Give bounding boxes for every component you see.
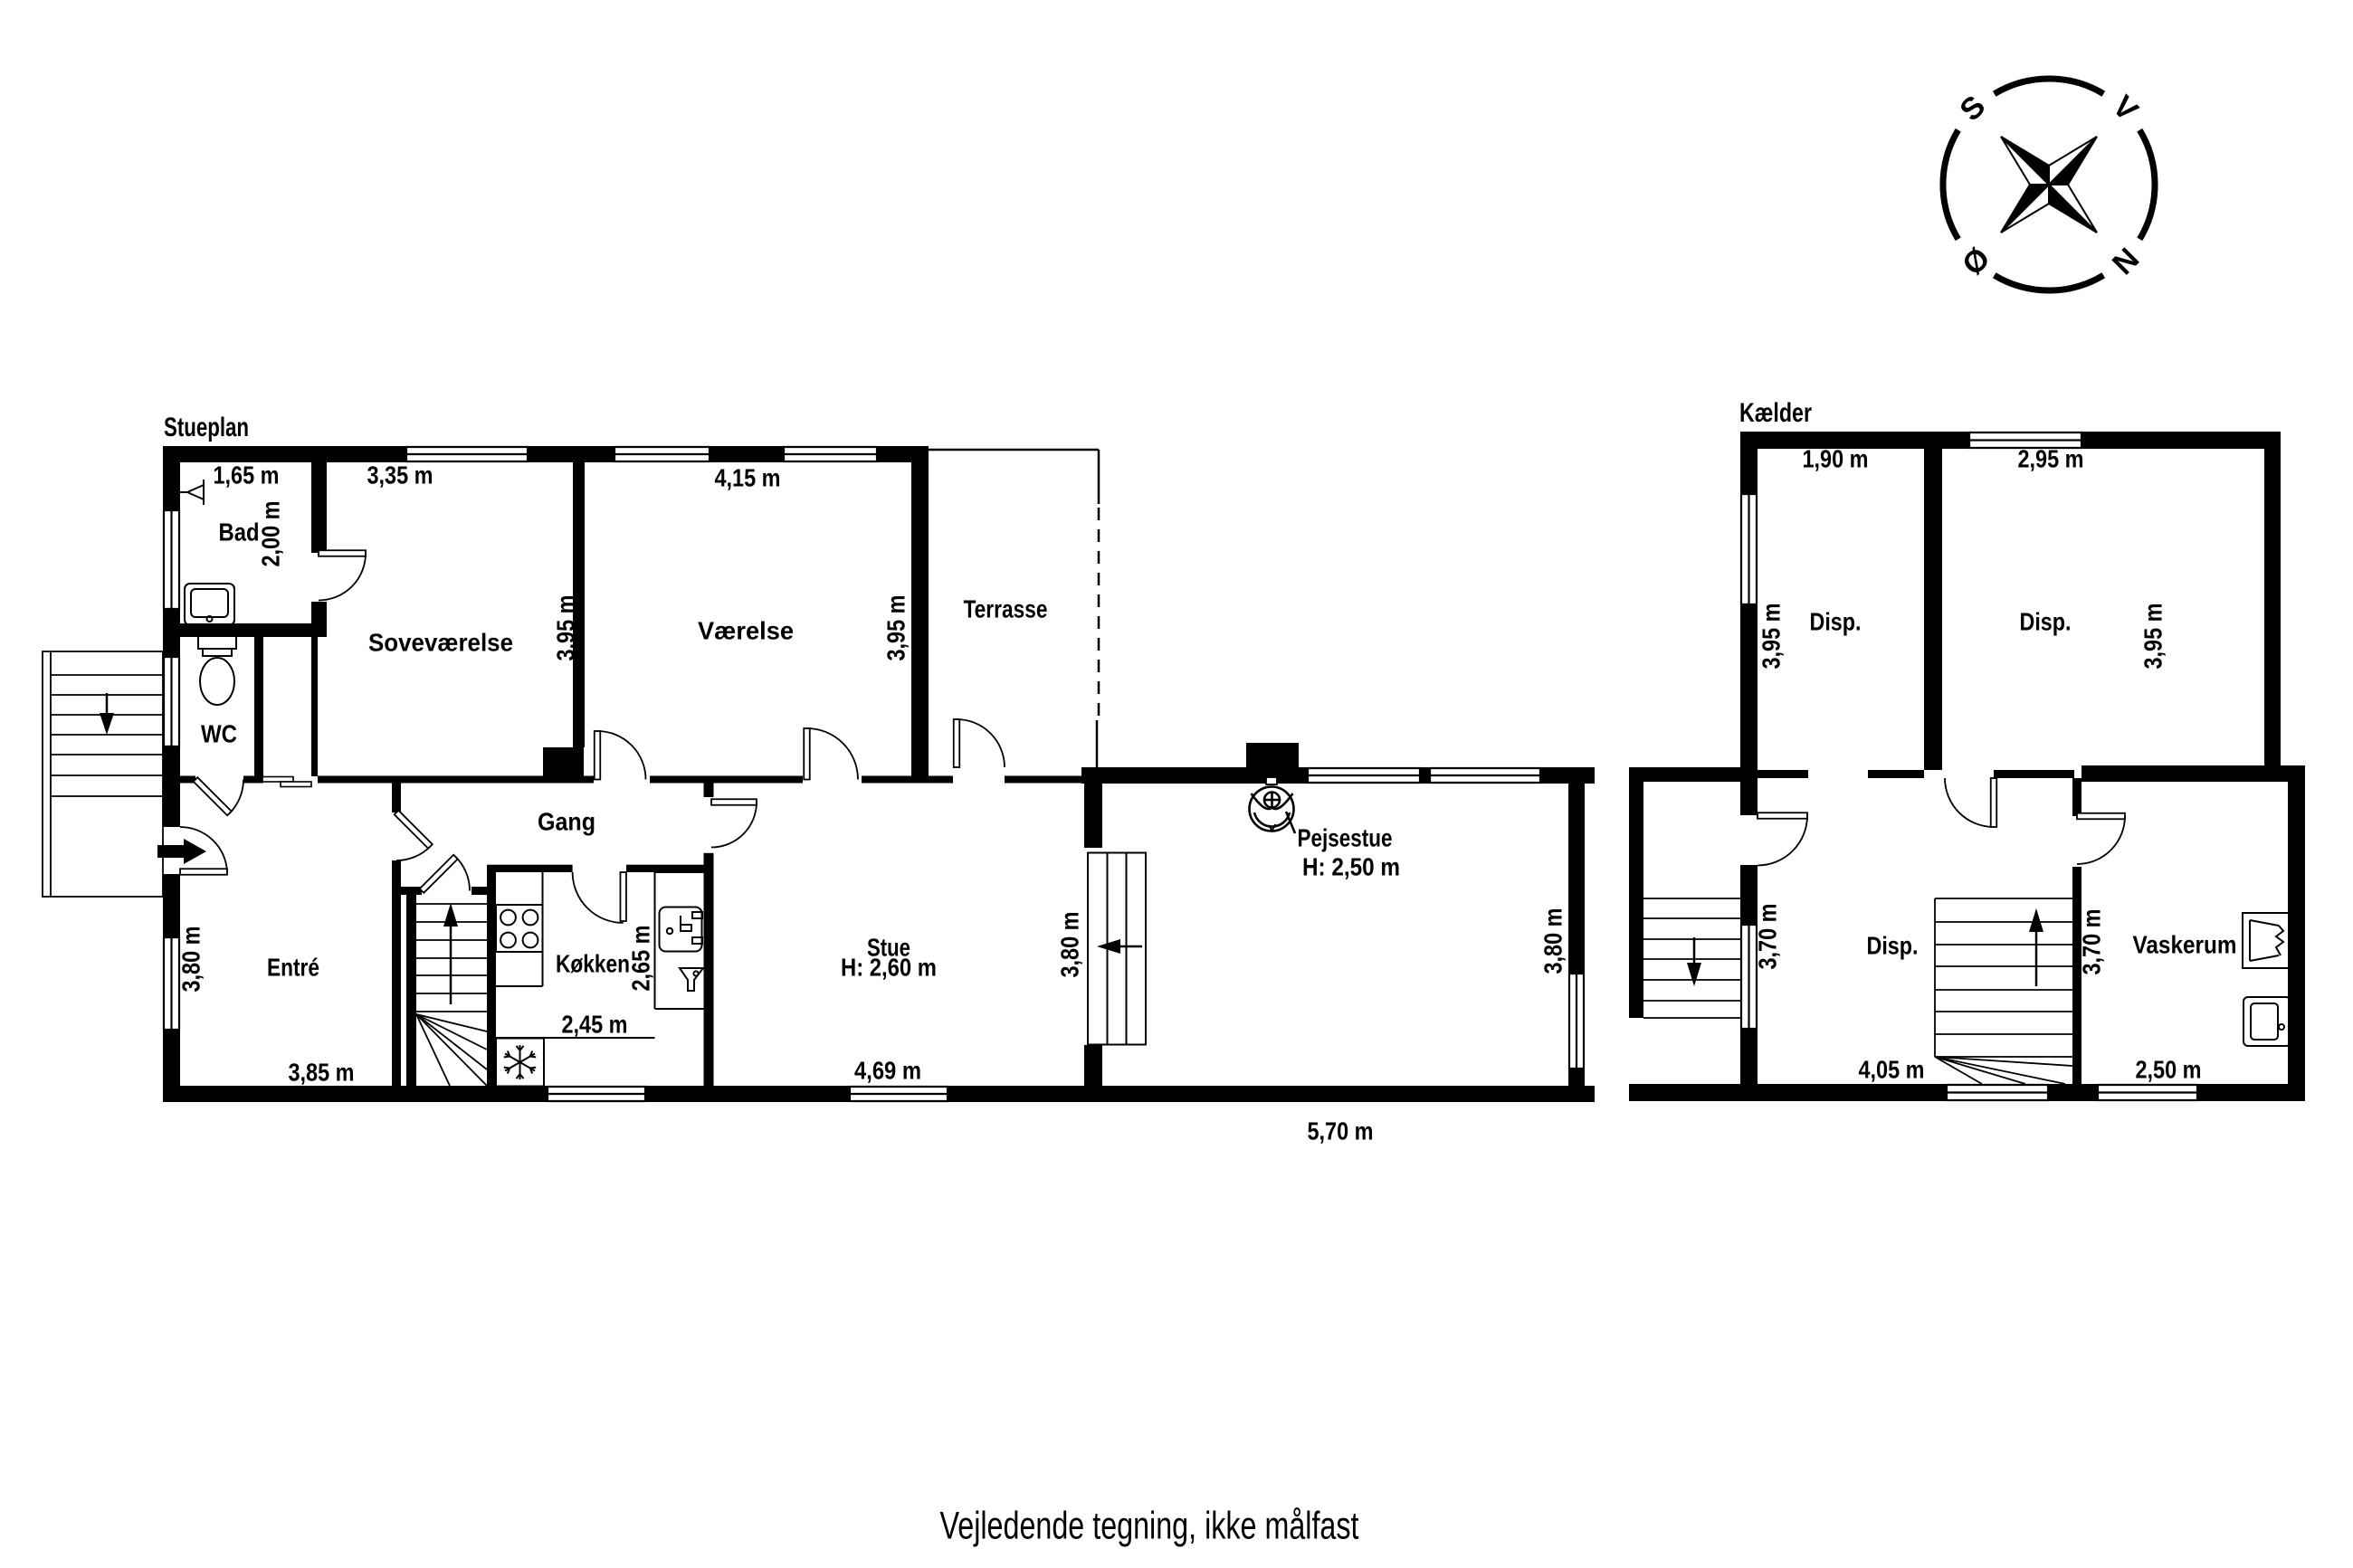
svg-text:Entré: Entré — [267, 953, 319, 981]
svg-text:Stueplan: Stueplan — [164, 413, 249, 442]
svg-text:2,45 m: 2,45 m — [562, 1010, 628, 1038]
svg-text:Terrasse: Terrasse — [964, 594, 1048, 622]
svg-text:Vejledende tegning, ikke målfa: Vejledende tegning, ikke målfast — [940, 1504, 1359, 1547]
svg-text:2,50 m: 2,50 m — [2136, 1055, 2202, 1083]
svg-text:3,35 m: 3,35 m — [367, 461, 433, 489]
svg-text:Værelse: Værelse — [698, 616, 794, 644]
svg-text:H: 2,60 m: H: 2,60 m — [841, 953, 937, 981]
svg-text:1,90 m: 1,90 m — [1803, 444, 1869, 472]
svg-text:3,80 m: 3,80 m — [1055, 912, 1083, 978]
svg-text:Gang: Gang — [538, 807, 595, 835]
svg-text:Kælder: Kælder — [1739, 398, 1812, 428]
svg-text:3,80 m: 3,80 m — [1538, 908, 1567, 974]
svg-text:Soveværelse: Soveværelse — [368, 628, 513, 656]
svg-text:Pejsestue: Pejsestue — [1298, 823, 1393, 851]
svg-text:3,95 m: 3,95 m — [2139, 603, 2167, 670]
svg-text:Køkken: Køkken — [556, 949, 630, 977]
svg-text:3,95 m: 3,95 m — [1757, 603, 1785, 670]
svg-text:Vaskerum: Vaskerum — [2133, 930, 2237, 958]
svg-text:3,85 m: 3,85 m — [289, 1058, 355, 1086]
svg-text:3,80 m: 3,80 m — [176, 927, 205, 993]
svg-text:2,65 m: 2,65 m — [626, 926, 654, 992]
svg-text:3,70 m: 3,70 m — [1753, 904, 1781, 970]
svg-text:4,69 m: 4,69 m — [854, 1056, 921, 1084]
svg-text:Disp.: Disp. — [1867, 931, 1919, 959]
svg-text:Disp.: Disp. — [1810, 607, 1862, 635]
svg-text:Bad: Bad — [219, 518, 260, 546]
svg-text:2,95 m: 2,95 m — [2018, 444, 2084, 472]
svg-text:3,95 m: 3,95 m — [551, 595, 579, 661]
svg-text:5,70 m: 5,70 m — [1308, 1117, 1374, 1145]
svg-text:Disp.: Disp. — [2020, 607, 2072, 635]
svg-text:4,05 m: 4,05 m — [1859, 1055, 1925, 1083]
svg-text:3,70 m: 3,70 m — [2077, 909, 2105, 975]
svg-text:3,95 m: 3,95 m — [881, 595, 910, 661]
svg-text:2,00 m: 2,00 m — [256, 501, 284, 567]
svg-text:4,15 m: 4,15 m — [715, 463, 781, 491]
svg-text:WC: WC — [201, 719, 237, 747]
svg-text:1,65 m: 1,65 m — [214, 461, 280, 489]
svg-text:H: 2,50 m: H: 2,50 m — [1302, 852, 1400, 880]
